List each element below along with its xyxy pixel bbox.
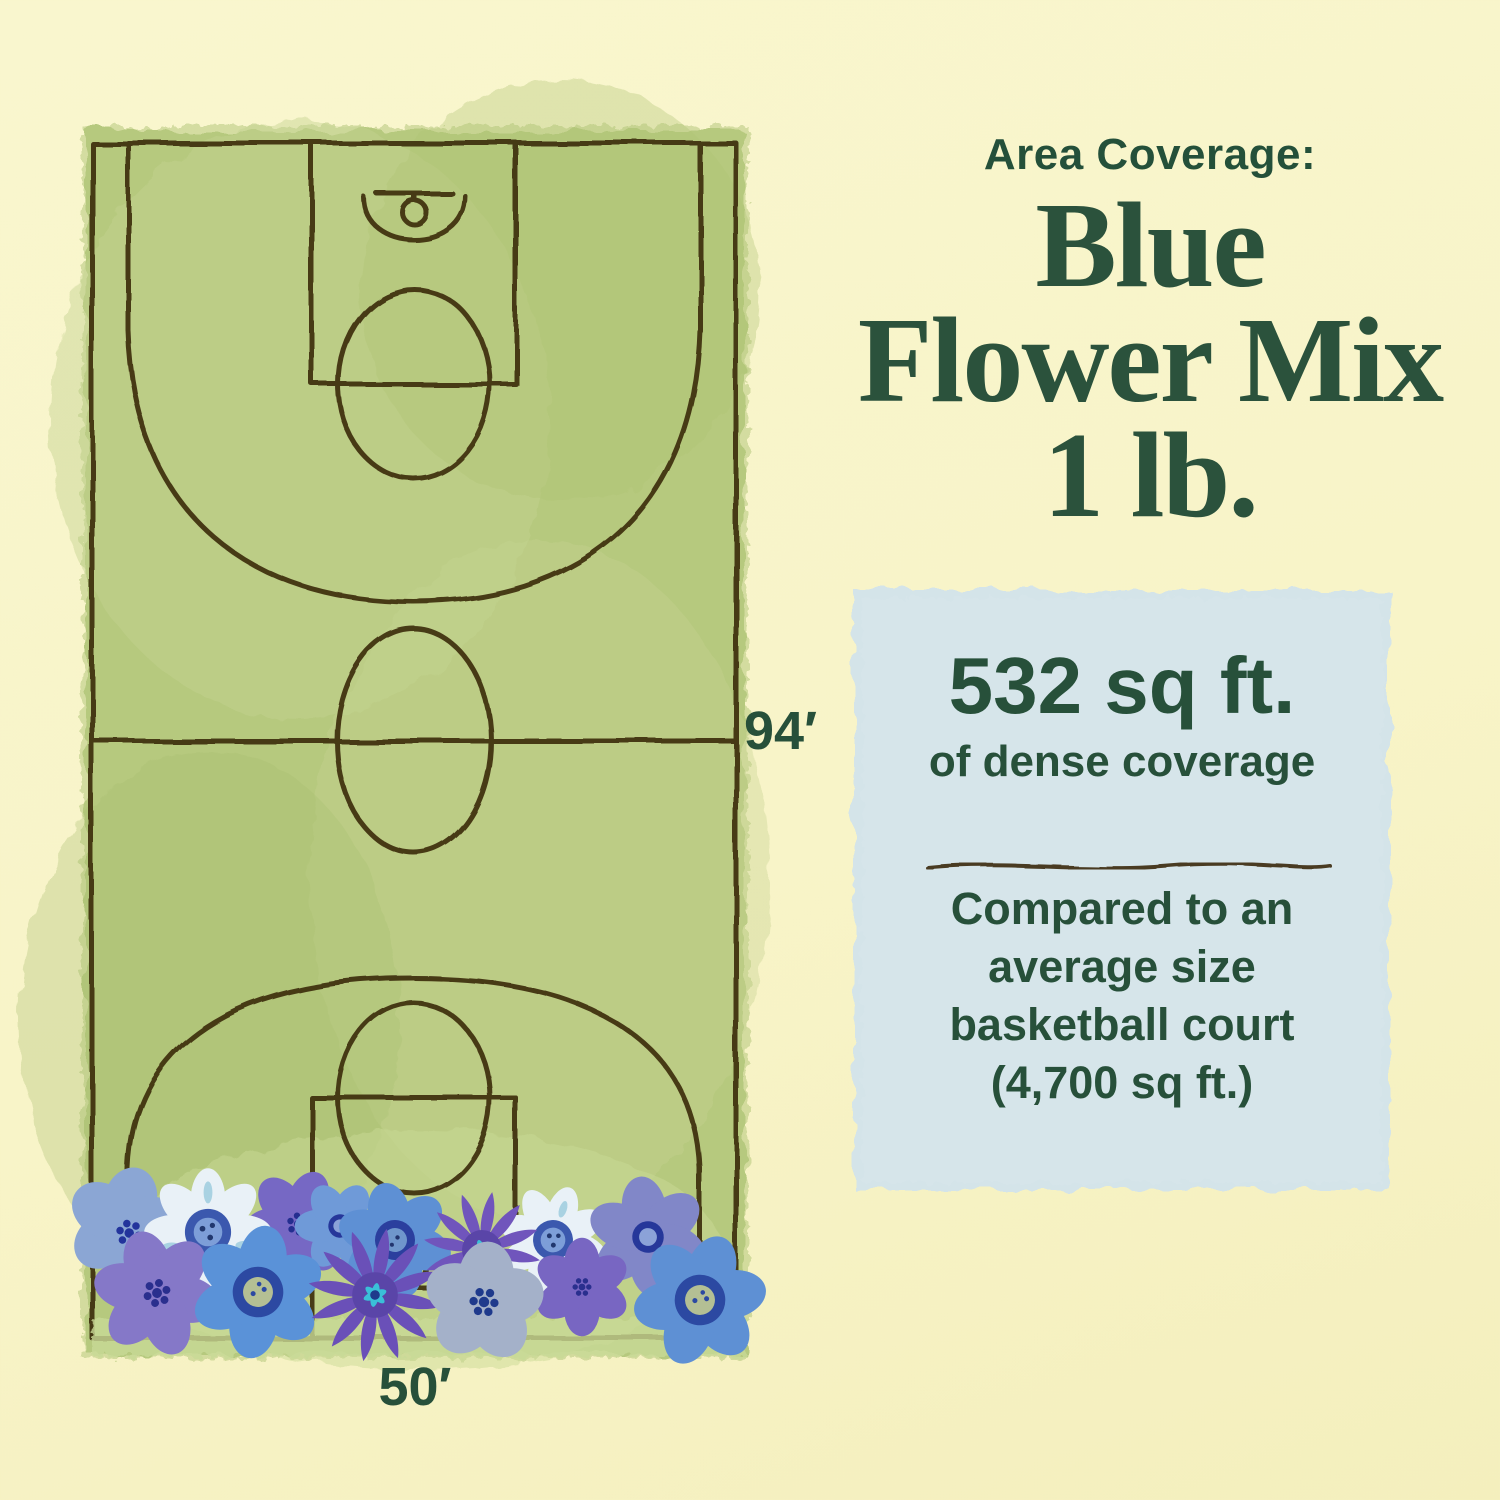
comparison-line: average size	[852, 938, 1392, 996]
product-title-line: Blue	[780, 188, 1500, 303]
product-title-line: 1 lb.	[780, 418, 1500, 533]
comparison-line: basketball court	[852, 996, 1392, 1054]
court-length-label: 94′	[744, 700, 864, 762]
comparison-line: Compared to an	[852, 880, 1392, 938]
coverage-callout: 532 sq ft. of dense coverage Compared to…	[852, 588, 1392, 1112]
divider-spacer	[917, 830, 1327, 844]
coverage-area-value: 532 sq ft.	[852, 644, 1392, 728]
kicker-label: Area Coverage:	[810, 130, 1490, 180]
product-title: Blue Flower Mix 1 lb.	[780, 188, 1500, 533]
comparison-text: Compared to an average size basketball c…	[852, 880, 1392, 1112]
comparison-line: (4,700 sq ft.)	[852, 1054, 1392, 1112]
coverage-area-detail: of dense coverage	[852, 738, 1392, 786]
infographic-root: { "header": { "kicker": "Area Coverage:"…	[0, 0, 1500, 1500]
court-width-label: 50′	[330, 1356, 500, 1418]
product-title-line: Flower Mix	[780, 303, 1500, 418]
